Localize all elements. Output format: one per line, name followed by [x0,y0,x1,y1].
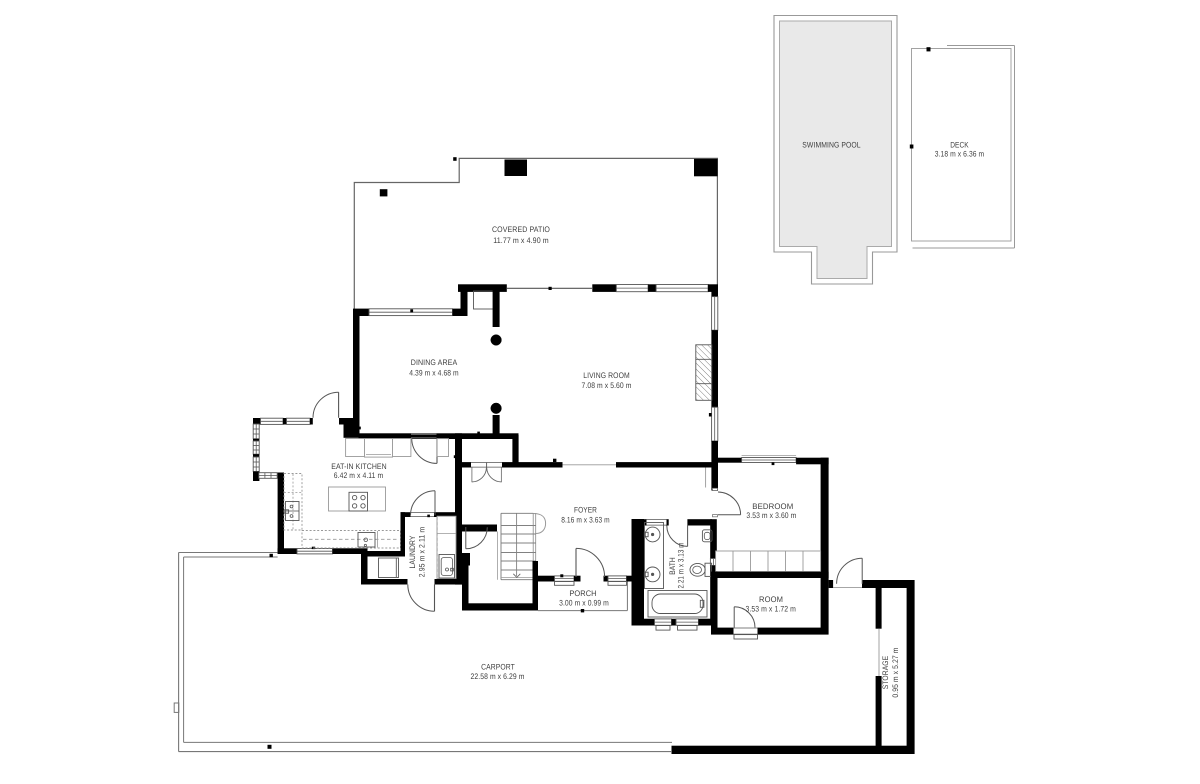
svg-text:2.95 m x 2.11 m: 2.95 m x 2.11 m [418,527,427,578]
svg-text:8.16 m x 3.63 m: 8.16 m x 3.63 m [561,516,610,525]
svg-text:11.77 m x 4.90 m: 11.77 m x 4.90 m [493,236,549,245]
svg-text:CARPORT: CARPORT [481,663,515,672]
svg-text:COVERED PATIO: COVERED PATIO [492,225,550,234]
svg-text:DINING AREA: DINING AREA [411,358,458,367]
svg-text:4.39 m x 4.68 m: 4.39 m x 4.68 m [409,368,459,377]
svg-text:DECK: DECK [950,141,969,150]
svg-text:3.53 m x 1.72 m: 3.53 m x 1.72 m [745,605,796,614]
svg-text:BEDROOM: BEDROOM [752,502,793,511]
svg-text:2.21 m x 3.13 m: 2.21 m x 3.13 m [677,542,686,588]
svg-text:3.53 m x 3.60 m: 3.53 m x 3.60 m [746,511,796,520]
svg-text:LAUNDRY: LAUNDRY [408,535,417,568]
svg-text:PORCH: PORCH [569,589,596,598]
svg-text:SWIMMING POOL: SWIMMING POOL [802,141,861,150]
svg-text:3.00 m x 0.99 m: 3.00 m x 0.99 m [559,599,609,608]
svg-text:ROOM: ROOM [759,595,783,604]
svg-text:STORAGE: STORAGE [881,656,890,690]
svg-text:FOYER: FOYER [574,506,597,515]
svg-text:6.42 m x 4.11 m: 6.42 m x 4.11 m [334,471,384,480]
svg-text:0.95 m x 5.27 m: 0.95 m x 5.27 m [891,647,900,697]
svg-text:3.18 m x 6.36 m: 3.18 m x 6.36 m [935,150,985,159]
svg-text:LIVING ROOM: LIVING ROOM [583,371,630,380]
svg-text:EAT-IN KITCHEN: EAT-IN KITCHEN [331,462,387,471]
svg-text:BATH: BATH [668,557,677,575]
svg-text:7.08 m x 5.60 m: 7.08 m x 5.60 m [582,381,632,390]
svg-text:22.58 m x 6.29 m: 22.58 m x 6.29 m [471,672,525,681]
